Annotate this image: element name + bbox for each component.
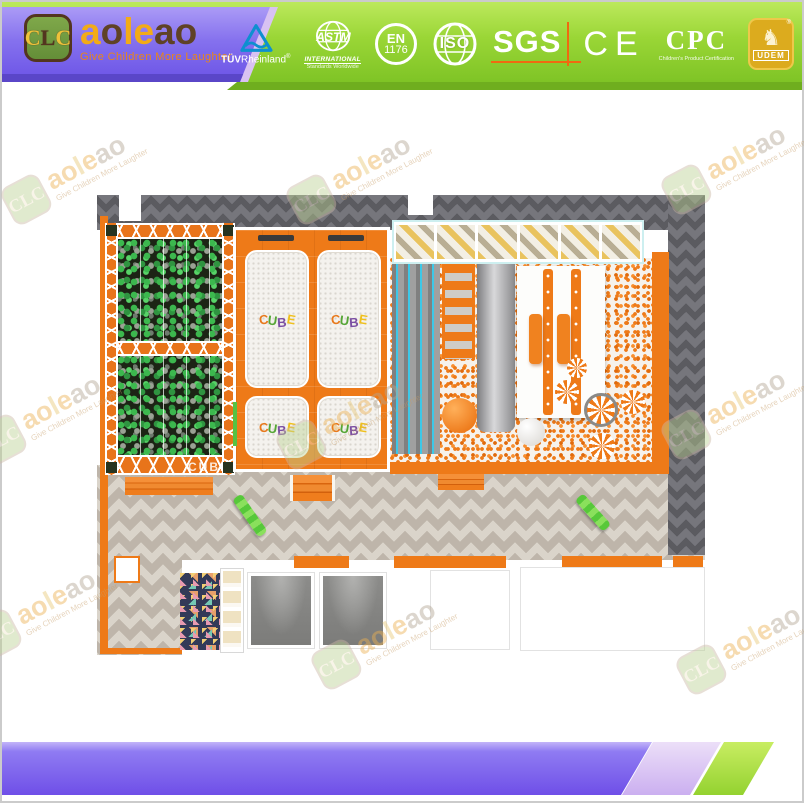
platform-handle [529, 314, 542, 364]
cert-iso: ISO [431, 20, 479, 68]
tuv-bold: TÜV [221, 54, 241, 65]
platform-handle [557, 314, 570, 364]
udem-badge: ♞ UDEM ® [748, 18, 794, 70]
cert-cpc: CPC Children's Product Certification [659, 27, 734, 62]
mezzanine-panel [561, 225, 599, 259]
platform-rail [543, 269, 553, 415]
wall-pad [258, 235, 294, 241]
certification-logos: TÜVRheinland® ASTM INTERNATIONAL Standar… [221, 8, 794, 80]
ladder [442, 264, 475, 359]
watermark-tagline: Give Children More Laughter [714, 137, 804, 193]
mezzanine-platform [392, 220, 644, 264]
slide [477, 264, 515, 432]
floor-dark-chevron-right [668, 195, 705, 555]
iso-globe: ISO [431, 20, 479, 68]
udem-reg: ® [787, 20, 791, 26]
cube-logo: CUBE [259, 421, 296, 434]
astm-international-label: INTERNATIONAL [304, 56, 361, 64]
large-white-ball [517, 418, 545, 446]
brand-name: aoleao [80, 14, 232, 49]
pinwheel-decoration [621, 390, 645, 414]
trampoline-court: CUBE CUBE CUBE CUBE [233, 227, 390, 472]
cube-logo: CUBE [331, 421, 368, 434]
foam-pit-truss-left [105, 223, 118, 475]
white-square-marker [114, 556, 140, 583]
white-panel [520, 567, 705, 651]
sgs-accent-hline [491, 61, 581, 63]
cert-ce: CE [583, 27, 644, 61]
tuv-label: TÜVRheinland® [221, 54, 290, 65]
floor-notch-left [119, 195, 141, 221]
pinwheel-decoration [555, 380, 579, 404]
truss-corner [106, 225, 117, 236]
brand-text-block: aoleao Give Children More Laughter [80, 14, 232, 63]
pinwheel-decoration [589, 433, 615, 459]
udem-label: UDEM [753, 50, 789, 61]
cert-udem: ♞ UDEM ® [748, 18, 794, 70]
foam-pit-truss-bottom: CUBE [105, 455, 235, 475]
cpc-label: CPC [666, 27, 728, 54]
tuv-regular: Rheinland [241, 54, 286, 65]
header-green-bevel [227, 82, 802, 90]
wall-pad [328, 235, 364, 241]
badge-letter: C [25, 25, 41, 51]
svg-text:ASTM: ASTM [315, 29, 352, 43]
sgs-label: SGS [493, 26, 561, 57]
cert-tuv-rheinland: TÜVRheinland® [221, 23, 290, 65]
mezzanine-panel [602, 225, 640, 259]
trampoline-steps [290, 475, 335, 501]
brand-tagline: Give Children More Laughter [80, 51, 232, 63]
mezzanine-panel [478, 225, 516, 259]
cube-logo: CUBE [259, 313, 296, 326]
foam-pit-truss-middle [105, 341, 235, 356]
footer-purple-bar [2, 742, 652, 795]
playground-render: CUBE CUBE CUBE CUBE CUBE [97, 190, 705, 660]
cert-en-1176: EN 1176 [375, 23, 417, 65]
ball-pit-right-wall [652, 252, 669, 474]
watermark-brand: aoleao [717, 593, 804, 665]
large-orange-ball [442, 398, 477, 433]
trampoline-bed: CUBE [245, 396, 309, 458]
watermark-text-block: aoleao Give Children More Laughter [717, 593, 804, 673]
watermark-text-block: aoleao Give Children More Laughter [702, 113, 804, 193]
watermark-brand: aoleao [702, 358, 804, 430]
trampoline-bed: CUBE [317, 250, 381, 388]
header-banner: CLC aoleao Give Children More Laughter T… [2, 2, 802, 90]
mezzanine-panel [437, 225, 475, 259]
sgs-accent-vline [567, 22, 569, 66]
grey-mat [248, 573, 314, 648]
ball-pit-steps [438, 474, 484, 490]
badge-letter: L [41, 25, 56, 51]
watermark-tagline: Give Children More Laughter [729, 617, 804, 673]
iso-label: ISO [440, 35, 471, 53]
footer-band [2, 742, 802, 795]
badge-letter: C [55, 25, 71, 51]
brand-logo: CLC aoleao Give Children More Laughter [24, 14, 232, 63]
foam-pit: CUBE [105, 223, 235, 475]
orange-platform-strip [294, 556, 349, 568]
watermark-brand: aoleao [702, 113, 804, 185]
cube-logo: CUBE [331, 313, 368, 326]
watermark-tagline: Give Children More Laughter [714, 382, 804, 438]
watermark-clc-badge: CLC [0, 171, 55, 228]
green-edge-strip [233, 402, 237, 446]
mezzanine-panel [396, 225, 434, 259]
watermark-brand: aoleao [42, 123, 145, 195]
udem-lion-icon: ♞ [761, 27, 781, 49]
tuv-reg: ® [286, 54, 290, 60]
pinwheel-decoration-large [584, 393, 618, 427]
watermark-clc-badge: CLC [0, 411, 30, 468]
en-number: 1176 [384, 45, 408, 56]
watermark-text-block: aoleao Give Children More Laughter [702, 358, 804, 438]
cert-astm: ASTM INTERNATIONAL Standards Worldwide [304, 19, 361, 70]
bottom-left-wall [100, 648, 182, 654]
foam-pit-steps [125, 477, 213, 495]
watermark-brand: aoleao [327, 123, 430, 195]
en-1176-circle: EN 1176 [375, 23, 417, 65]
watermark-clc-badge: CLC [0, 606, 25, 663]
ball-pit-border [390, 462, 669, 474]
cubby-shelf [221, 569, 243, 652]
cert-sgs: SGS [493, 26, 569, 63]
astm-globe-icon: ASTM [314, 19, 352, 55]
mezzanine-panel [520, 225, 558, 259]
cpc-sub-label: Children's Product Certification [659, 56, 734, 62]
pinwheel-decoration [567, 358, 587, 378]
trampoline-bed: CUBE [245, 250, 309, 388]
truss-corner [106, 462, 117, 473]
trampoline-bed: CUBE [317, 396, 381, 458]
tuv-triangle-icon [238, 23, 274, 53]
orange-platform-strip [394, 556, 506, 568]
triangle-pattern-mat [180, 573, 220, 650]
clc-badge-icon: CLC [24, 14, 72, 62]
product-image-canvas: CLC aoleao Give Children More Laughter T… [0, 0, 804, 803]
ce-label: CE [583, 27, 644, 61]
climbing-lanes [392, 264, 440, 454]
grey-mat [320, 573, 386, 648]
floor-notch-center [408, 195, 433, 215]
astm-standards-label: Standards Worldwide [307, 64, 359, 70]
foam-pit-truss-top [105, 223, 235, 239]
white-panel [430, 570, 510, 650]
